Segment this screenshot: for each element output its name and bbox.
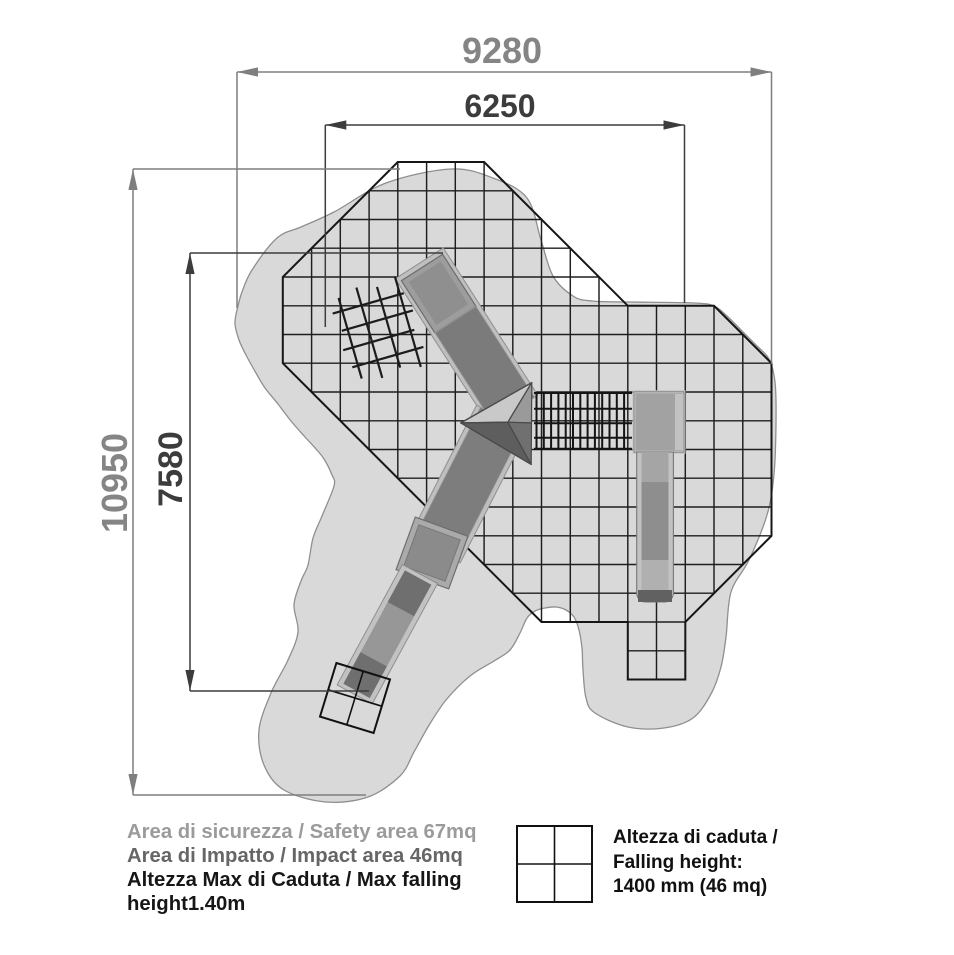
- svg-text:height1.40m: height1.40m: [127, 893, 245, 915]
- svg-text:9280: 9280: [462, 30, 542, 71]
- svg-text:6250: 6250: [464, 88, 535, 124]
- svg-text:7580: 7580: [152, 431, 190, 507]
- svg-text:Altezza di caduta /: Altezza di caduta /: [613, 827, 778, 848]
- svg-text:Area di Impatto / Impact area: Area di Impatto / Impact area 46mq: [127, 845, 463, 867]
- svg-text:1400 mm (46 mq): 1400 mm (46 mq): [613, 876, 767, 897]
- svg-text:Area di sicurezza / Safety are: Area di sicurezza / Safety area 67mq: [127, 821, 476, 843]
- svg-text:Falling height:: Falling height:: [613, 852, 743, 873]
- svg-text:10950: 10950: [94, 433, 135, 533]
- svg-text:Altezza Max di Caduta / Max fa: Altezza Max di Caduta / Max falling: [127, 869, 462, 891]
